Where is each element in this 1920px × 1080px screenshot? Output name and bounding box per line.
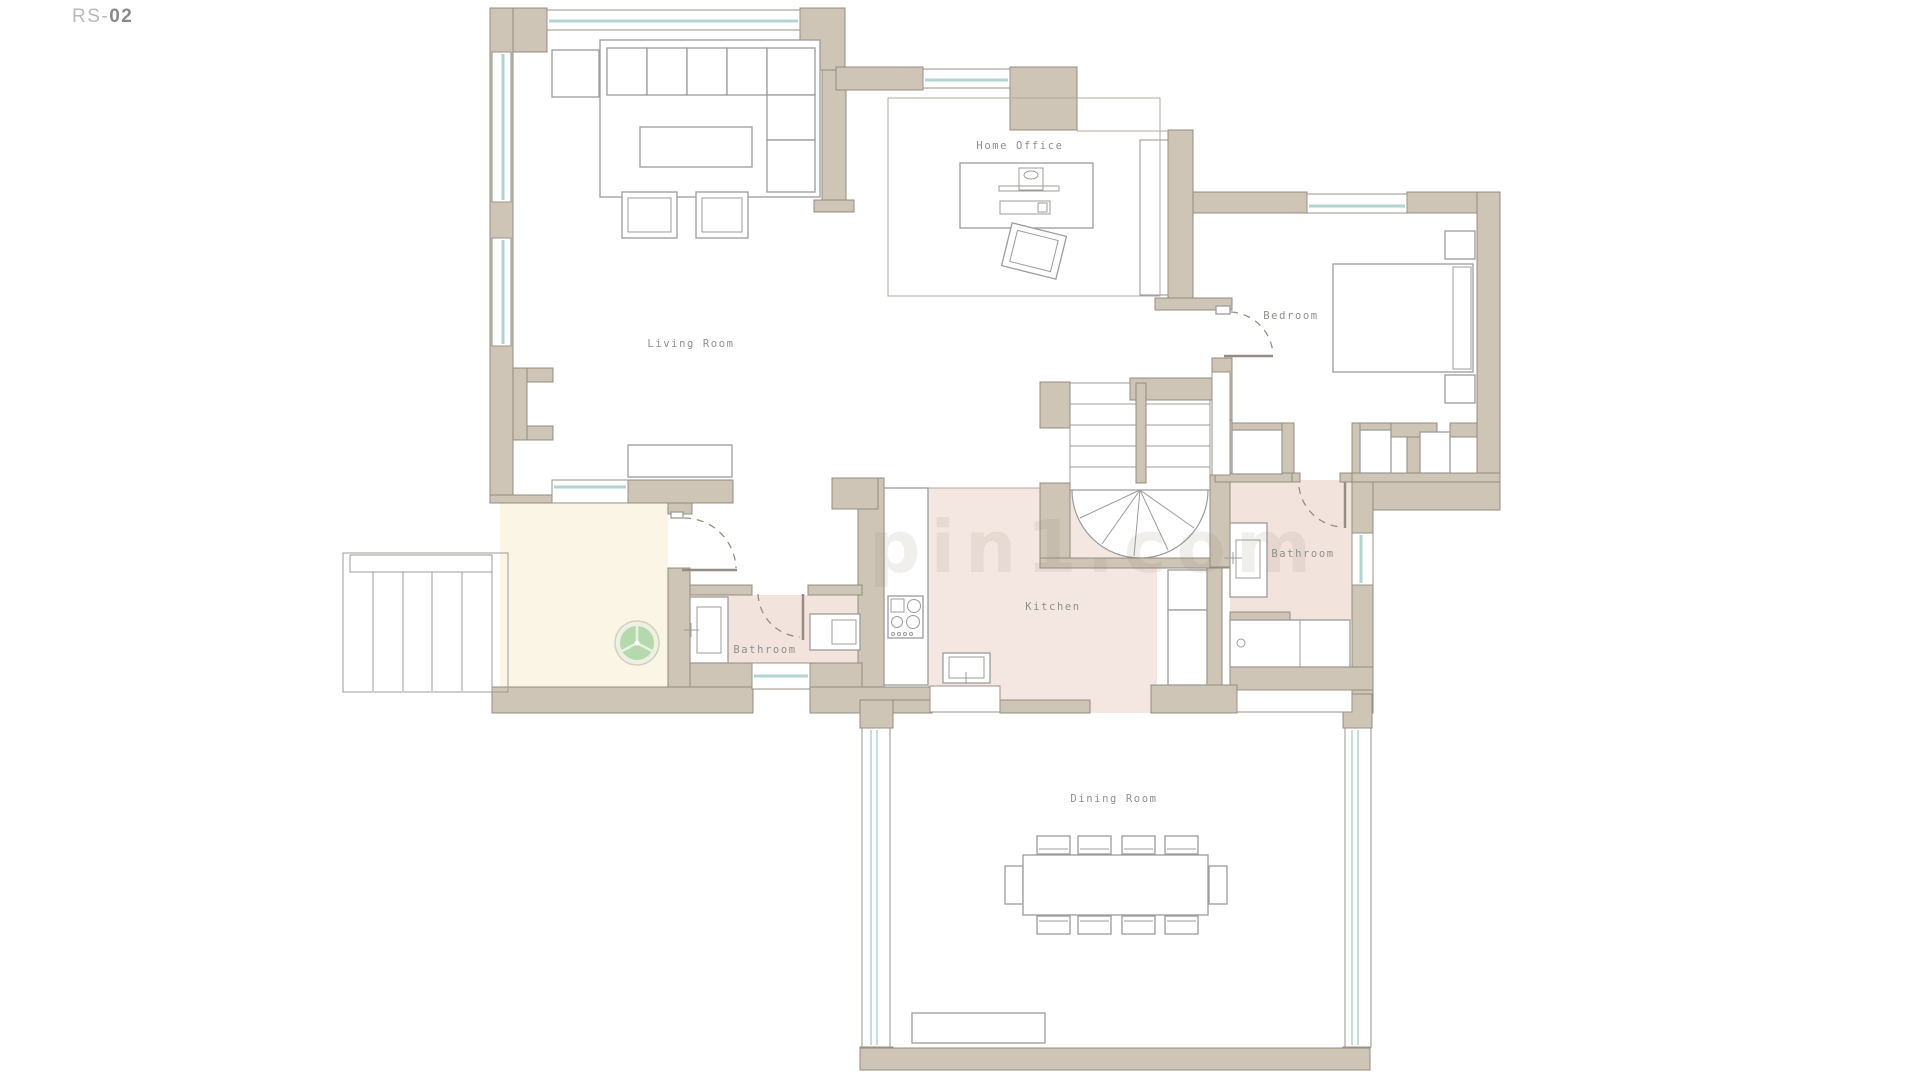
wall-bath-door-jamb	[1340, 473, 1352, 482]
dining-chair	[1078, 916, 1111, 934]
nightstand	[1445, 375, 1475, 403]
kitchen-cabinet	[1168, 610, 1207, 685]
dining-chair	[1122, 836, 1155, 854]
wall-closet-top	[1232, 423, 1282, 430]
dining-table	[1023, 855, 1208, 915]
bed	[1333, 264, 1473, 372]
opening-kitchen-dining	[930, 686, 1000, 712]
desk-chair	[1002, 223, 1067, 279]
tv-console	[628, 445, 732, 477]
wall-ho-north	[836, 67, 923, 90]
sofa-chaise	[767, 140, 815, 192]
wall-stairs-nw	[1040, 382, 1070, 428]
ottoman	[622, 192, 677, 238]
wall-cavity-bedroom	[1140, 140, 1168, 295]
dining-chair	[1165, 916, 1198, 934]
sheet-label: RS-02	[72, 6, 133, 27]
fireplace	[513, 368, 527, 440]
dining-chair	[1005, 866, 1023, 904]
armchair	[552, 50, 599, 97]
wall-bath-door-jamb	[1292, 473, 1300, 482]
wall-bedroom-east	[1477, 192, 1500, 482]
label-kitchen: Kitchen	[1025, 601, 1080, 613]
ottoman	[696, 192, 748, 238]
wall-bedroom-north	[1193, 192, 1307, 213]
wall-closet-end	[1450, 423, 1477, 437]
entry-steps-outline	[343, 553, 508, 692]
wall-dining-south	[860, 1048, 1370, 1070]
wall-smallbath-south	[690, 663, 753, 689]
closet	[1420, 432, 1450, 473]
sofa-cushion	[687, 48, 727, 95]
dining-chair	[1078, 836, 1111, 854]
label-home-office: Home Office	[976, 140, 1063, 152]
wall-entry-east	[668, 568, 690, 687]
wall-closet-t-stem	[1407, 437, 1420, 478]
wall-smallbath-north	[690, 585, 752, 595]
watermark: pin1.com	[869, 505, 1321, 589]
wall-bath-south	[1230, 667, 1373, 690]
door-swing-entry	[684, 518, 736, 568]
nightstand	[1445, 231, 1475, 259]
fireplace	[527, 368, 553, 382]
plant-center	[635, 641, 640, 646]
sofa-cushion	[607, 48, 647, 95]
wall-smallbath-south	[810, 663, 862, 689]
label-bathroom-small: Bathroom	[733, 644, 796, 656]
entry-steps	[343, 553, 508, 692]
floor-plan-drawing: pin1.com Living Room Home Office Bedroom…	[0, 0, 1920, 1080]
wall-shower-stub	[1230, 612, 1290, 620]
window-dining-west	[862, 728, 890, 1047]
wall-bedroom-west	[1168, 130, 1193, 308]
sofa-cushion	[727, 48, 767, 95]
label-dining-room: Dining Room	[1070, 793, 1157, 805]
desk	[960, 163, 1093, 228]
floor-plan-canvas: pin1.com Living Room Home Office Bedroom…	[0, 0, 1920, 1080]
sofa-cushion	[647, 48, 687, 95]
desk-chair-outer	[1002, 223, 1067, 279]
dining-chair	[1037, 916, 1070, 934]
door-hinge	[671, 512, 683, 518]
wall-closet-post	[1282, 423, 1294, 478]
wall-kitchen-south-east	[1151, 685, 1237, 713]
door-hinge	[1216, 306, 1230, 314]
sheet-prefix: RS-	[72, 6, 109, 27]
wall-entry-south	[492, 687, 753, 713]
label-bathroom-main: Bathroom	[1271, 548, 1334, 560]
wall-cavity-stairs	[1212, 372, 1230, 475]
wall-bath-north-east	[1352, 473, 1500, 482]
wall-closet-top	[1360, 423, 1391, 430]
wall-lr-ho-divider	[822, 70, 846, 212]
wall-lr-south	[628, 480, 733, 503]
toilet	[810, 614, 860, 650]
sofa-corner-cushion	[767, 48, 815, 95]
wall-dining-corner-nw	[860, 700, 893, 728]
sheet-number: 02	[109, 6, 133, 27]
wall-closet-post	[1352, 423, 1360, 478]
sofa-cushion	[767, 95, 815, 140]
label-bedroom: Bedroom	[1263, 310, 1318, 322]
kitchen-passage-floor	[1090, 700, 1151, 713]
wall-bath-east-upper	[1352, 482, 1373, 533]
window-bedroom-north	[1307, 194, 1407, 213]
fireplace	[527, 426, 553, 440]
sideboard	[912, 1013, 1045, 1043]
opening-bath-dining	[1237, 690, 1352, 712]
label-living-room: Living Room	[647, 338, 734, 350]
window-entry-north	[552, 480, 628, 503]
wall-smallbath-north	[808, 585, 862, 595]
closet	[1360, 430, 1391, 473]
closet	[1232, 430, 1282, 474]
shower	[1230, 620, 1350, 667]
dining-chair	[1037, 836, 1070, 854]
dining-chair	[1122, 916, 1155, 934]
wall-dining-north	[1000, 700, 1090, 713]
entry-landing	[350, 555, 492, 572]
plant	[615, 621, 659, 665]
wall-divider-end	[814, 200, 854, 212]
wall-bath-east-lower	[1352, 585, 1373, 668]
wall-stairs-divider	[1136, 383, 1146, 483]
wall-lr-south-corner	[490, 495, 552, 503]
coffee-table	[640, 127, 752, 167]
dining-chair	[1165, 836, 1198, 854]
dining-chair	[1209, 866, 1227, 904]
wall-se-corner-block	[1373, 482, 1500, 510]
